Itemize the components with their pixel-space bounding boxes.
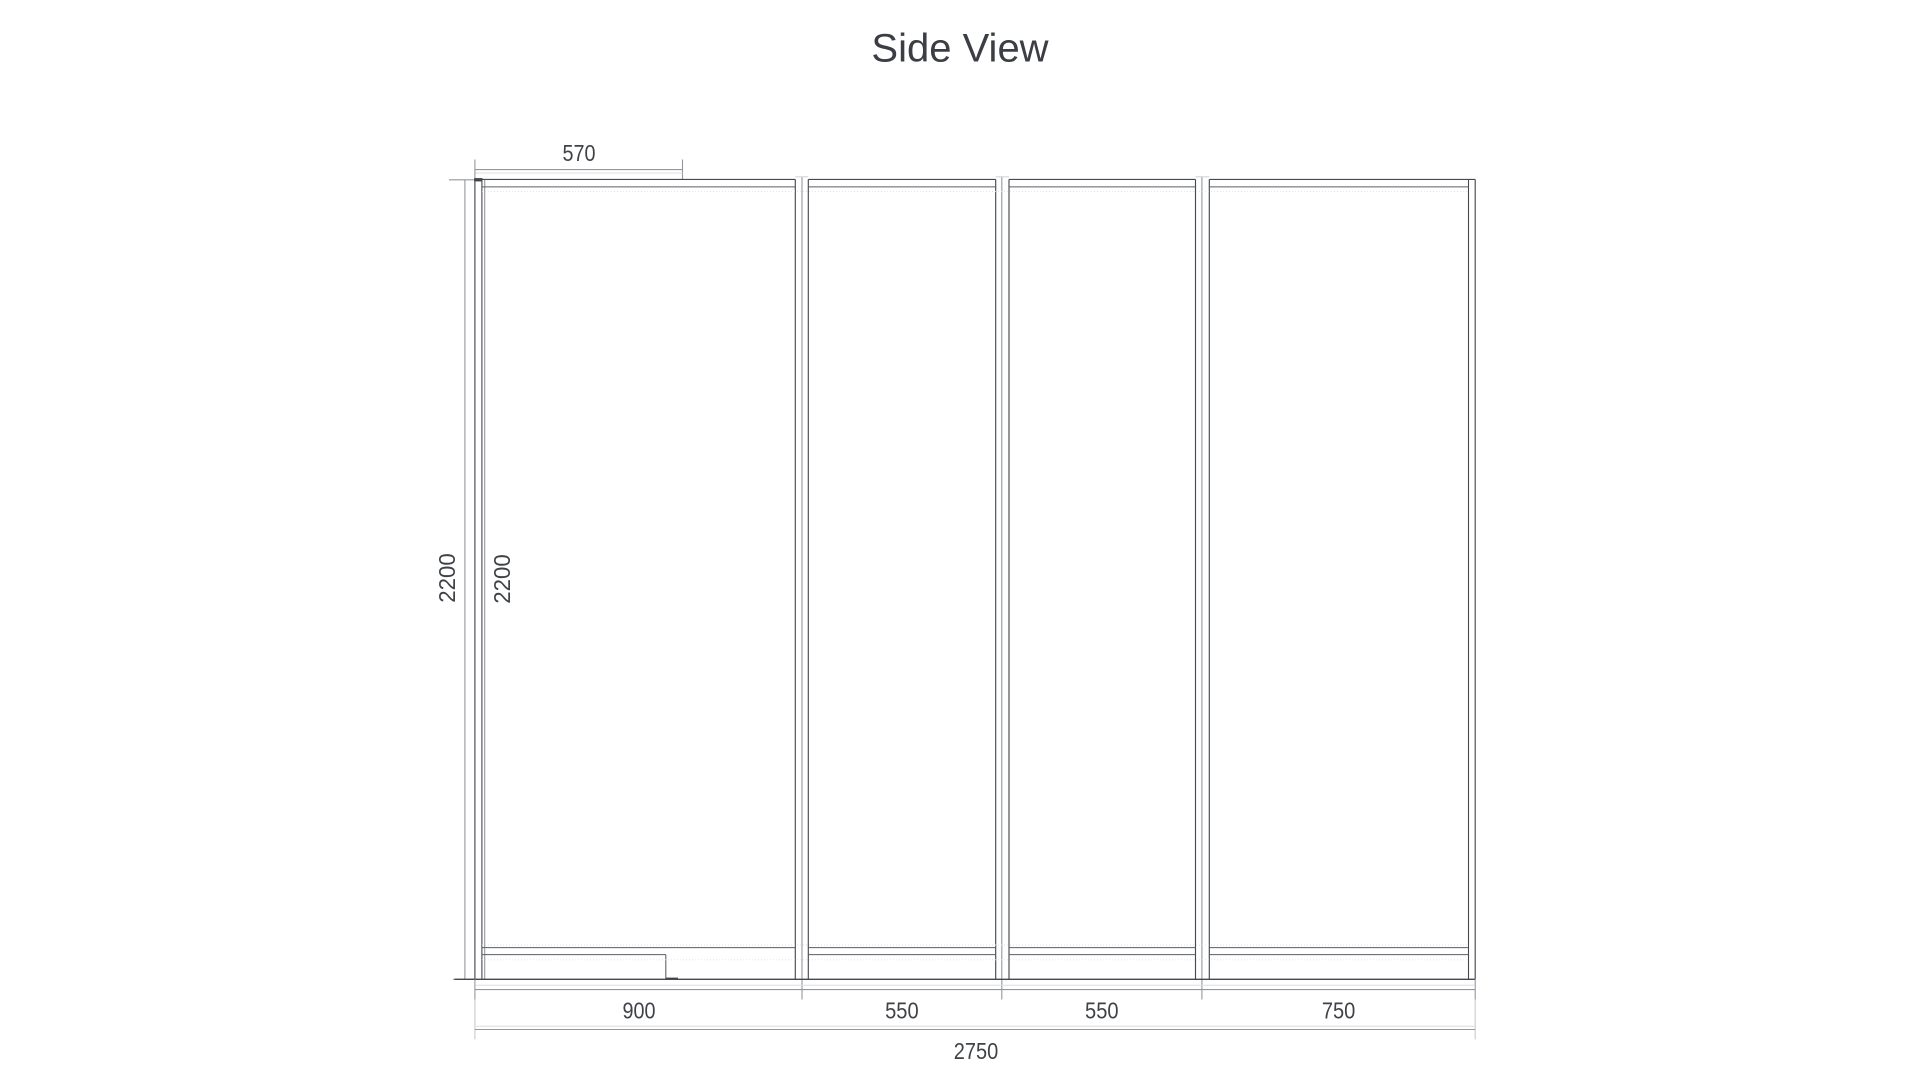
svg-text:550: 550 bbox=[1085, 998, 1119, 1024]
svg-text:900: 900 bbox=[623, 998, 656, 1024]
svg-text:Side View: Side View bbox=[871, 27, 1048, 71]
svg-text:550: 550 bbox=[885, 998, 919, 1024]
svg-text:2750: 2750 bbox=[954, 1038, 999, 1064]
svg-text:750: 750 bbox=[1322, 998, 1356, 1024]
svg-text:2200: 2200 bbox=[489, 554, 515, 604]
svg-text:570: 570 bbox=[563, 140, 596, 166]
svg-text:2200: 2200 bbox=[434, 553, 460, 603]
